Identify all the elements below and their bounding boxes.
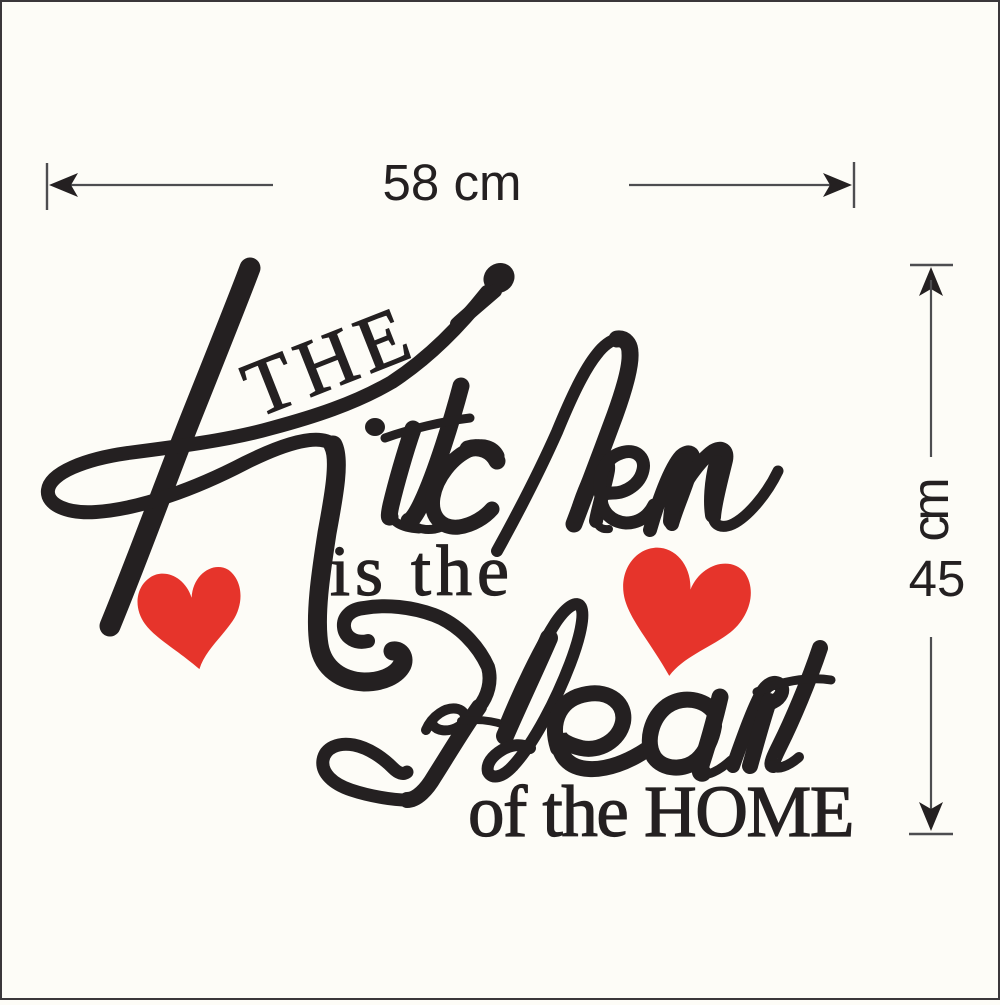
svg-text:cm: cm [902, 481, 960, 542]
svg-text:58 cm: 58 cm [383, 154, 522, 211]
svg-text:of the HOME: of the HOME [468, 771, 853, 852]
svg-text:45: 45 [909, 550, 966, 607]
svg-text:is the: is the [330, 531, 514, 611]
